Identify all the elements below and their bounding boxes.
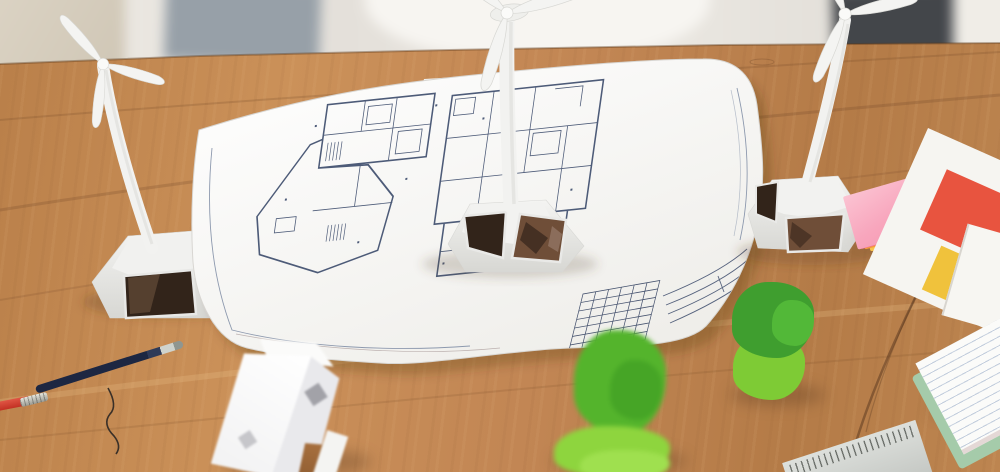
solar-panel-right-side bbox=[756, 182, 778, 222]
wind-turbine-left bbox=[57, 12, 166, 248]
tree-canopy-lobe bbox=[610, 360, 662, 420]
tree-canopy-lobe bbox=[772, 300, 814, 346]
turbine-rotor bbox=[809, 0, 919, 84]
turbine-blade bbox=[844, 0, 919, 19]
wind-turbine-right bbox=[807, 0, 919, 184]
photo-scene bbox=[0, 0, 1000, 472]
turbine-blade bbox=[57, 12, 106, 68]
desk-items-layer bbox=[0, 0, 1000, 472]
model-tree-left bbox=[550, 330, 680, 472]
tree-moss-base-front bbox=[580, 450, 670, 472]
